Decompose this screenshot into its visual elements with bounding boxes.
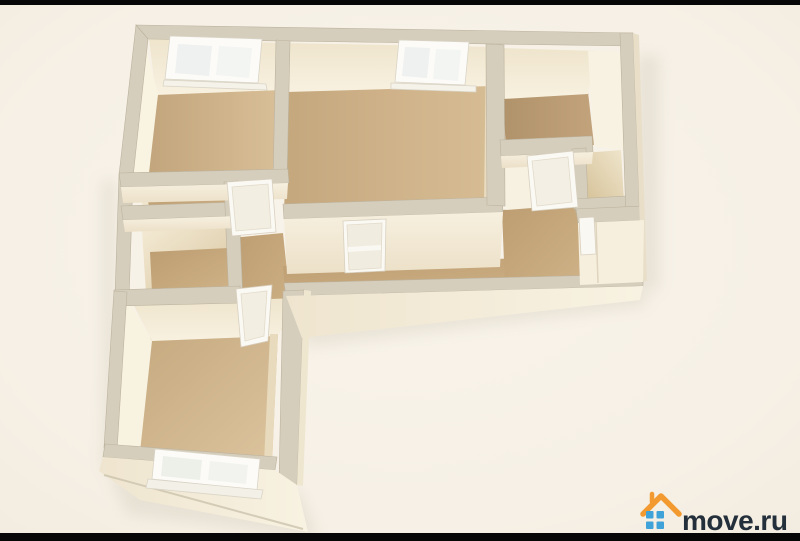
door-bathroom-arm (527, 151, 578, 211)
door-bedroom-bottom-left (236, 285, 272, 347)
wall-top-divider-bedroom-living (273, 40, 290, 183)
door-corridor (227, 179, 276, 236)
floor-hallway-arm (502, 204, 581, 288)
window-living (391, 40, 476, 92)
wall-top-living-east (486, 44, 505, 206)
floor-living-room (284, 84, 496, 213)
east-face-kitchen (588, 51, 626, 150)
letterbox-top (0, 0, 800, 5)
north-face-kitchen (499, 48, 596, 99)
door-niche-right (579, 217, 596, 255)
face-living-south (284, 212, 503, 274)
letterbox-bottom (0, 533, 800, 541)
floor-strip-bathroom (150, 248, 231, 292)
screenshot-frame: move.ru (0, 0, 800, 541)
window-bedroom-top-left (163, 36, 267, 90)
watermark-text: move.ru (682, 505, 787, 536)
floor-bedroom-bottom-left (138, 333, 278, 464)
floor-bedroom-top-left (148, 87, 282, 177)
door-living-south (343, 219, 386, 273)
